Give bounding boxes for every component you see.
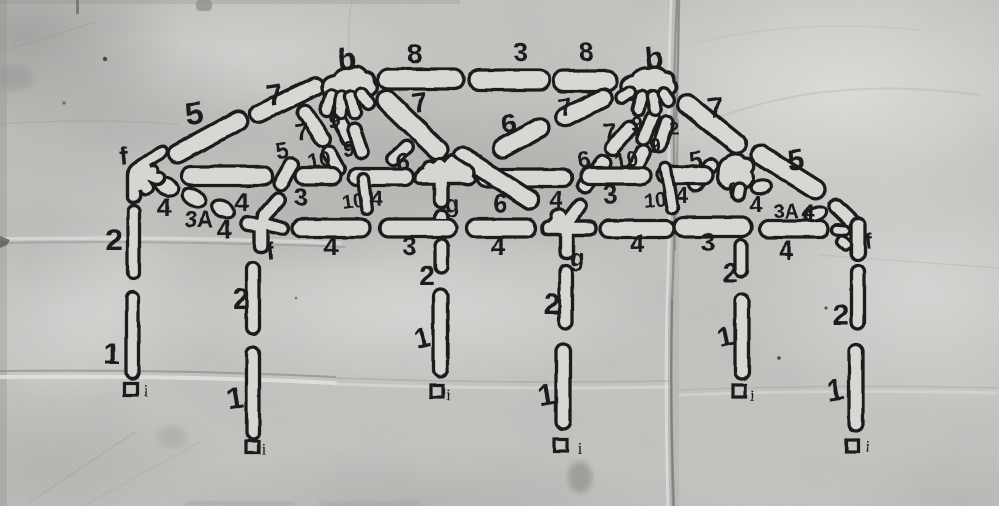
svg-text:g: g bbox=[445, 191, 460, 218]
svg-text:i: i bbox=[578, 439, 583, 458]
svg-text:4: 4 bbox=[157, 192, 172, 222]
svg-text:9: 9 bbox=[631, 113, 643, 136]
svg-text:4: 4 bbox=[324, 231, 339, 261]
svg-text:2: 2 bbox=[544, 288, 561, 321]
svg-text:10: 10 bbox=[613, 148, 639, 174]
svg-text:2: 2 bbox=[722, 257, 738, 288]
svg-text:i: i bbox=[446, 385, 451, 404]
svg-text:b: b bbox=[337, 42, 358, 76]
svg-text:3: 3 bbox=[403, 231, 417, 261]
svg-text:2: 2 bbox=[106, 224, 123, 257]
svg-text:2: 2 bbox=[833, 299, 850, 332]
svg-text:g: g bbox=[570, 245, 585, 272]
svg-text:i: i bbox=[750, 386, 755, 405]
svg-text:4: 4 bbox=[802, 200, 815, 225]
svg-text:3A: 3A bbox=[185, 207, 213, 232]
svg-text:3: 3 bbox=[603, 179, 617, 209]
svg-text:9: 9 bbox=[343, 138, 355, 161]
svg-text:3: 3 bbox=[294, 182, 308, 212]
svg-text:10: 10 bbox=[306, 148, 332, 174]
svg-text:3A: 3A bbox=[773, 201, 799, 223]
svg-text:8: 8 bbox=[407, 39, 422, 69]
svg-text:b: b bbox=[644, 41, 665, 75]
svg-text:4: 4 bbox=[217, 214, 232, 244]
svg-text:i: i bbox=[866, 437, 871, 456]
svg-text:10: 10 bbox=[341, 190, 366, 215]
svg-text:4: 4 bbox=[491, 231, 506, 261]
svg-text:2: 2 bbox=[669, 118, 679, 138]
svg-text:4: 4 bbox=[676, 183, 689, 208]
svg-text:10: 10 bbox=[643, 189, 668, 214]
svg-text:2: 2 bbox=[419, 260, 435, 291]
svg-text:4: 4 bbox=[779, 235, 794, 265]
svg-text:3: 3 bbox=[701, 227, 715, 257]
svg-text:1: 1 bbox=[104, 338, 121, 371]
svg-text:4: 4 bbox=[549, 187, 563, 214]
svg-text:i: i bbox=[144, 381, 149, 400]
svg-text:i: i bbox=[262, 440, 267, 459]
svg-text:4: 4 bbox=[235, 187, 250, 217]
svg-text:9: 9 bbox=[649, 135, 661, 158]
svg-text:6: 6 bbox=[493, 188, 507, 218]
svg-text:4: 4 bbox=[750, 192, 763, 217]
svg-text:9: 9 bbox=[328, 110, 340, 133]
svg-text:4: 4 bbox=[630, 228, 645, 258]
svg-text:4: 4 bbox=[371, 186, 384, 211]
svg-text:8: 8 bbox=[578, 37, 593, 67]
svg-text:2: 2 bbox=[233, 283, 250, 316]
svg-text:3: 3 bbox=[513, 37, 528, 67]
